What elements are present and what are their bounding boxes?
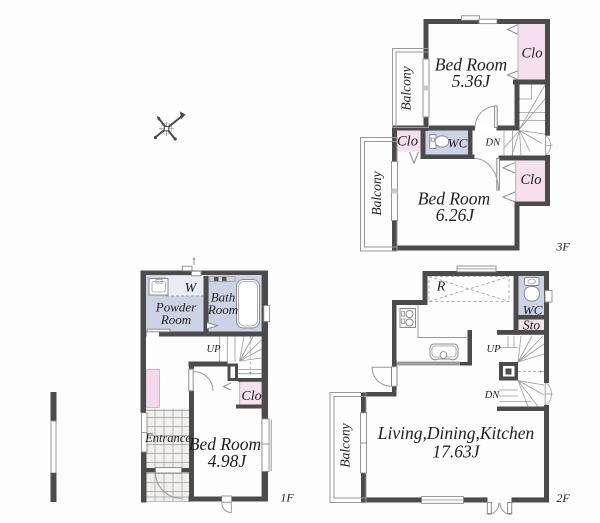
svg-text:4.98J: 4.98J: [208, 451, 248, 471]
svg-text:Balcony: Balcony: [399, 66, 414, 110]
svg-text:Clo: Clo: [397, 134, 418, 150]
svg-text:UP: UP: [207, 344, 222, 355]
svg-text:DN: DN: [485, 138, 502, 149]
svg-text:17.63J: 17.63J: [432, 442, 480, 462]
svg-text:3F: 3F: [555, 240, 570, 254]
svg-text:Balcony: Balcony: [369, 171, 384, 215]
svg-text:2F: 2F: [556, 491, 570, 505]
svg-text:UP: UP: [487, 344, 502, 355]
svg-text:5.36J: 5.36J: [452, 71, 492, 91]
svg-text:WC: WC: [448, 136, 468, 151]
svg-text:Sto: Sto: [523, 317, 541, 332]
svg-text:Room: Room: [207, 302, 238, 317]
svg-text:DN: DN: [484, 390, 501, 401]
svg-text:Balcony: Balcony: [338, 423, 353, 467]
svg-text:Clo: Clo: [521, 172, 542, 188]
svg-text:6.26J: 6.26J: [436, 205, 476, 225]
svg-text:Clo: Clo: [522, 46, 543, 62]
svg-text:Entrance: Entrance: [144, 431, 191, 445]
svg-text:Living,Dining,Kitchen: Living,Dining,Kitchen: [377, 423, 535, 443]
svg-text:W: W: [185, 281, 198, 296]
svg-text:R: R: [436, 280, 446, 295]
svg-text:1F: 1F: [280, 491, 294, 505]
svg-text:Clo: Clo: [241, 389, 261, 404]
svg-text:WC: WC: [523, 303, 543, 318]
svg-text:Room: Room: [160, 312, 191, 327]
